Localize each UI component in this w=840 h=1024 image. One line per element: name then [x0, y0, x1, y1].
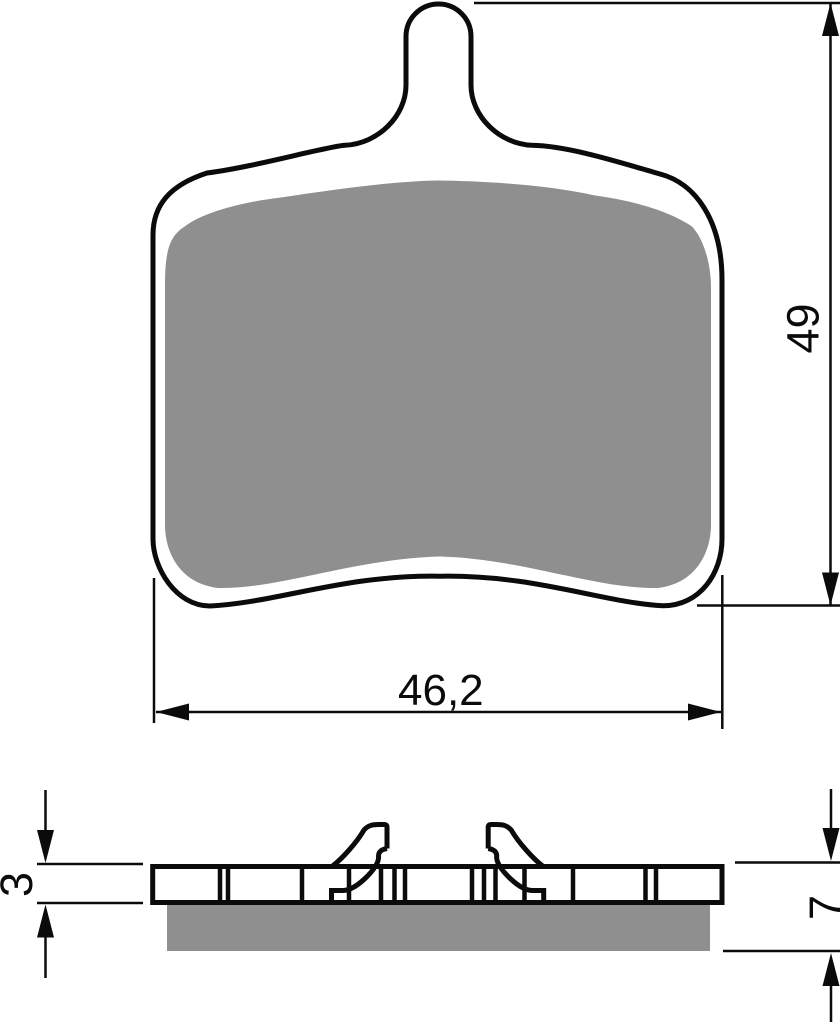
svg-text:49: 49 [778, 303, 829, 353]
svg-text:3: 3 [0, 872, 42, 897]
svg-text:7: 7 [800, 895, 840, 920]
svg-text:46,2: 46,2 [398, 666, 484, 715]
